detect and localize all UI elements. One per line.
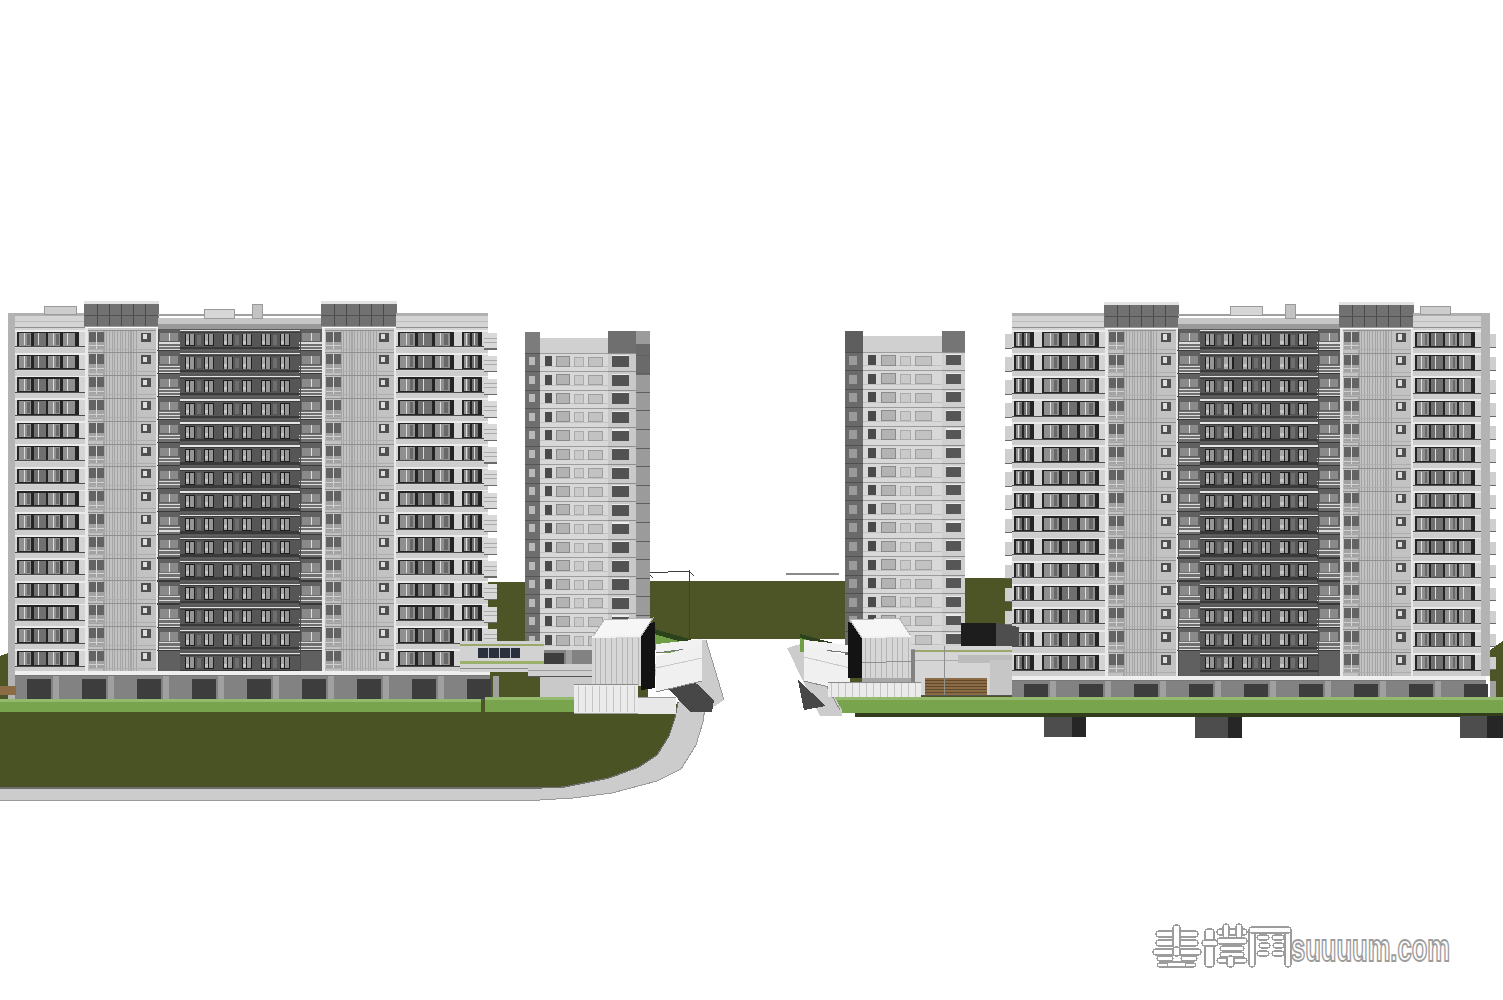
svg-text:suuuum.com: suuuum.com [1291,927,1450,969]
